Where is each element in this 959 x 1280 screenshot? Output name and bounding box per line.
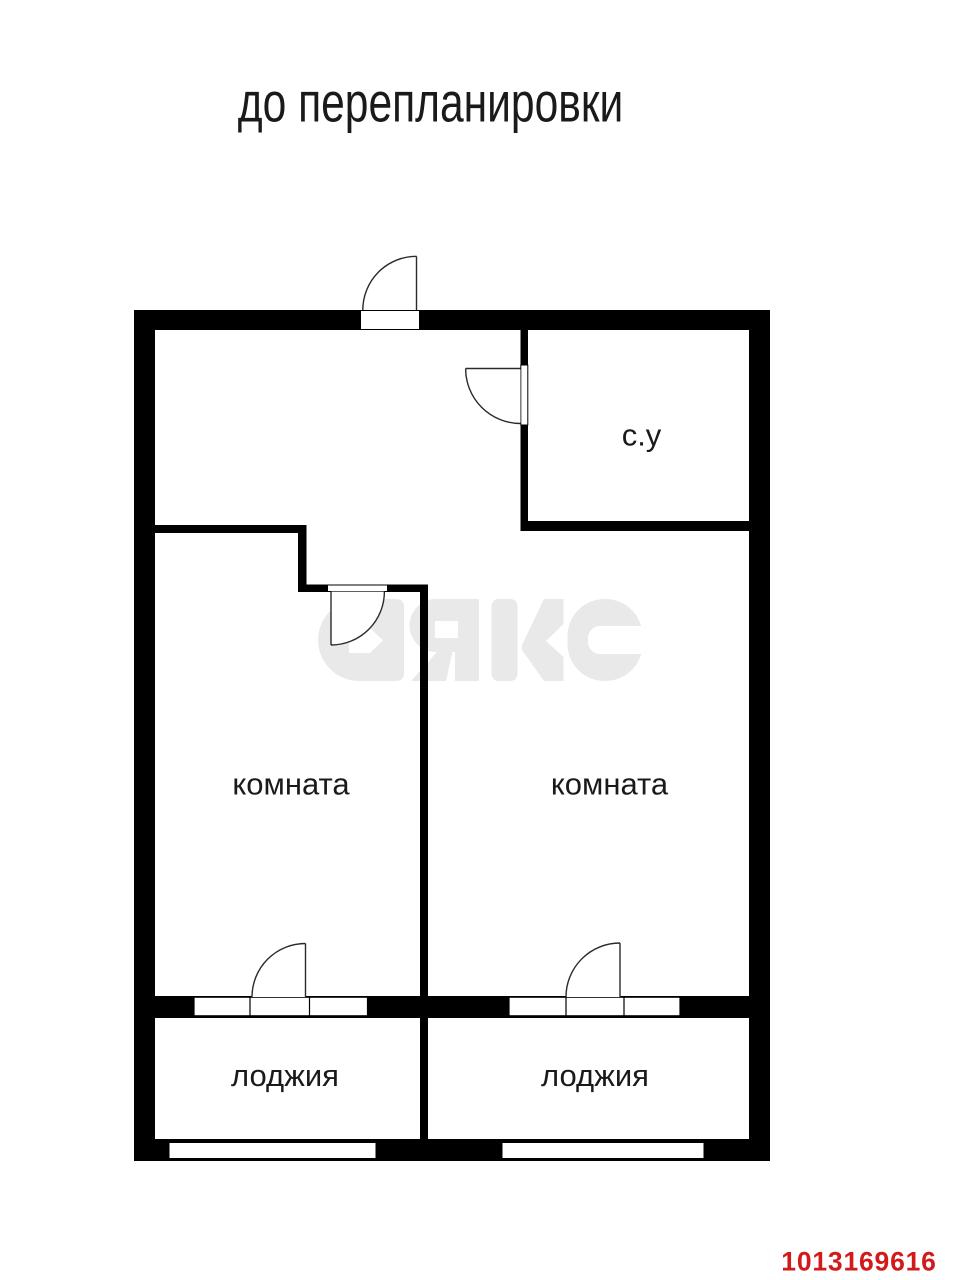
svg-text:лоджия: лоджия — [231, 1058, 339, 1093]
svg-text:комната: комната — [551, 767, 669, 802]
svg-text:лоджия: лоджия — [541, 1058, 649, 1093]
svg-text:1013169616: 1013169616 — [781, 1247, 936, 1277]
svg-text:с.у: с.у — [622, 418, 662, 453]
svg-text:комната: комната — [232, 767, 350, 802]
svg-text:до перепланировки: до перепланировки — [238, 71, 623, 134]
